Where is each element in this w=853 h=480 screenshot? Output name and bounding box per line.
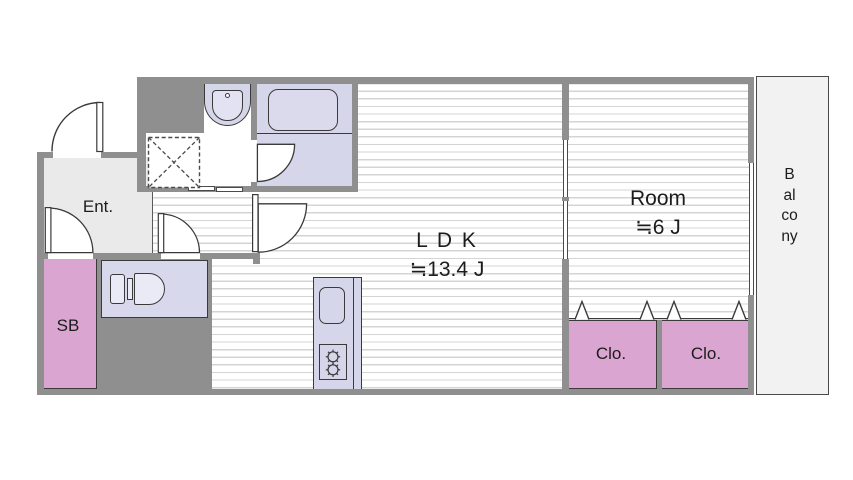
toilet-bowl-icon (134, 273, 165, 305)
ldk-label: L D K (410, 226, 485, 255)
room-label-block: Room ≒6 J (630, 184, 686, 242)
stove-icon (319, 344, 347, 380)
bathtub-icon (268, 89, 338, 131)
front-door-icon (52, 103, 103, 152)
wall-right-top (748, 77, 754, 163)
floor-plan: Ent. SB L D K ≒13.4 J Room ≒6 J Clo. Clo… (0, 0, 853, 480)
front-door-opening (53, 151, 101, 158)
washroom-sliding-panel-2 (216, 187, 243, 192)
wall-left-upper (137, 77, 146, 192)
wall-closet-divider (657, 320, 662, 389)
shoe-box-door-opening (48, 253, 93, 259)
room-label: Room (630, 184, 686, 213)
wall-bottom (37, 389, 754, 396)
toilet-seat-icon (127, 278, 133, 300)
wall-bathroom-right (352, 77, 358, 192)
closet-right-label: Clo. (691, 344, 721, 364)
shoe-box-label: SB (57, 316, 80, 336)
ldk-area-label: ≒13.4 J (410, 255, 485, 284)
wall-stub-ldk-door (253, 253, 261, 264)
bathroom-divider-line (257, 133, 352, 134)
wall-right-bottom (748, 295, 754, 389)
wall-room-left-top (562, 77, 569, 140)
wall-top (137, 77, 754, 84)
ldk-label-block: L D K ≒13.4 J (410, 226, 485, 284)
faucet-icon (225, 93, 230, 98)
room-area-label: ≒6 J (630, 213, 686, 242)
balcony-label: Balcony (781, 165, 798, 247)
wall-room-left-bottom (562, 259, 569, 389)
toilet-tank-icon (110, 274, 125, 304)
entrance-label: Ent. (83, 197, 113, 217)
washroom-sliding-panel-1 (188, 186, 215, 191)
kitchen-sink-icon (319, 287, 345, 324)
kitchen-counter-edge-line (353, 278, 354, 390)
wall-left-outer (37, 152, 44, 396)
closet-left-label: Clo. (596, 344, 626, 364)
balcony-window (749, 163, 754, 295)
toilet-door-opening (161, 253, 200, 259)
wall-washroom-south (137, 186, 358, 193)
shaft-block (137, 77, 204, 133)
bathroom-door-opening (251, 140, 257, 182)
room-sliding-door-tick (562, 197, 569, 201)
